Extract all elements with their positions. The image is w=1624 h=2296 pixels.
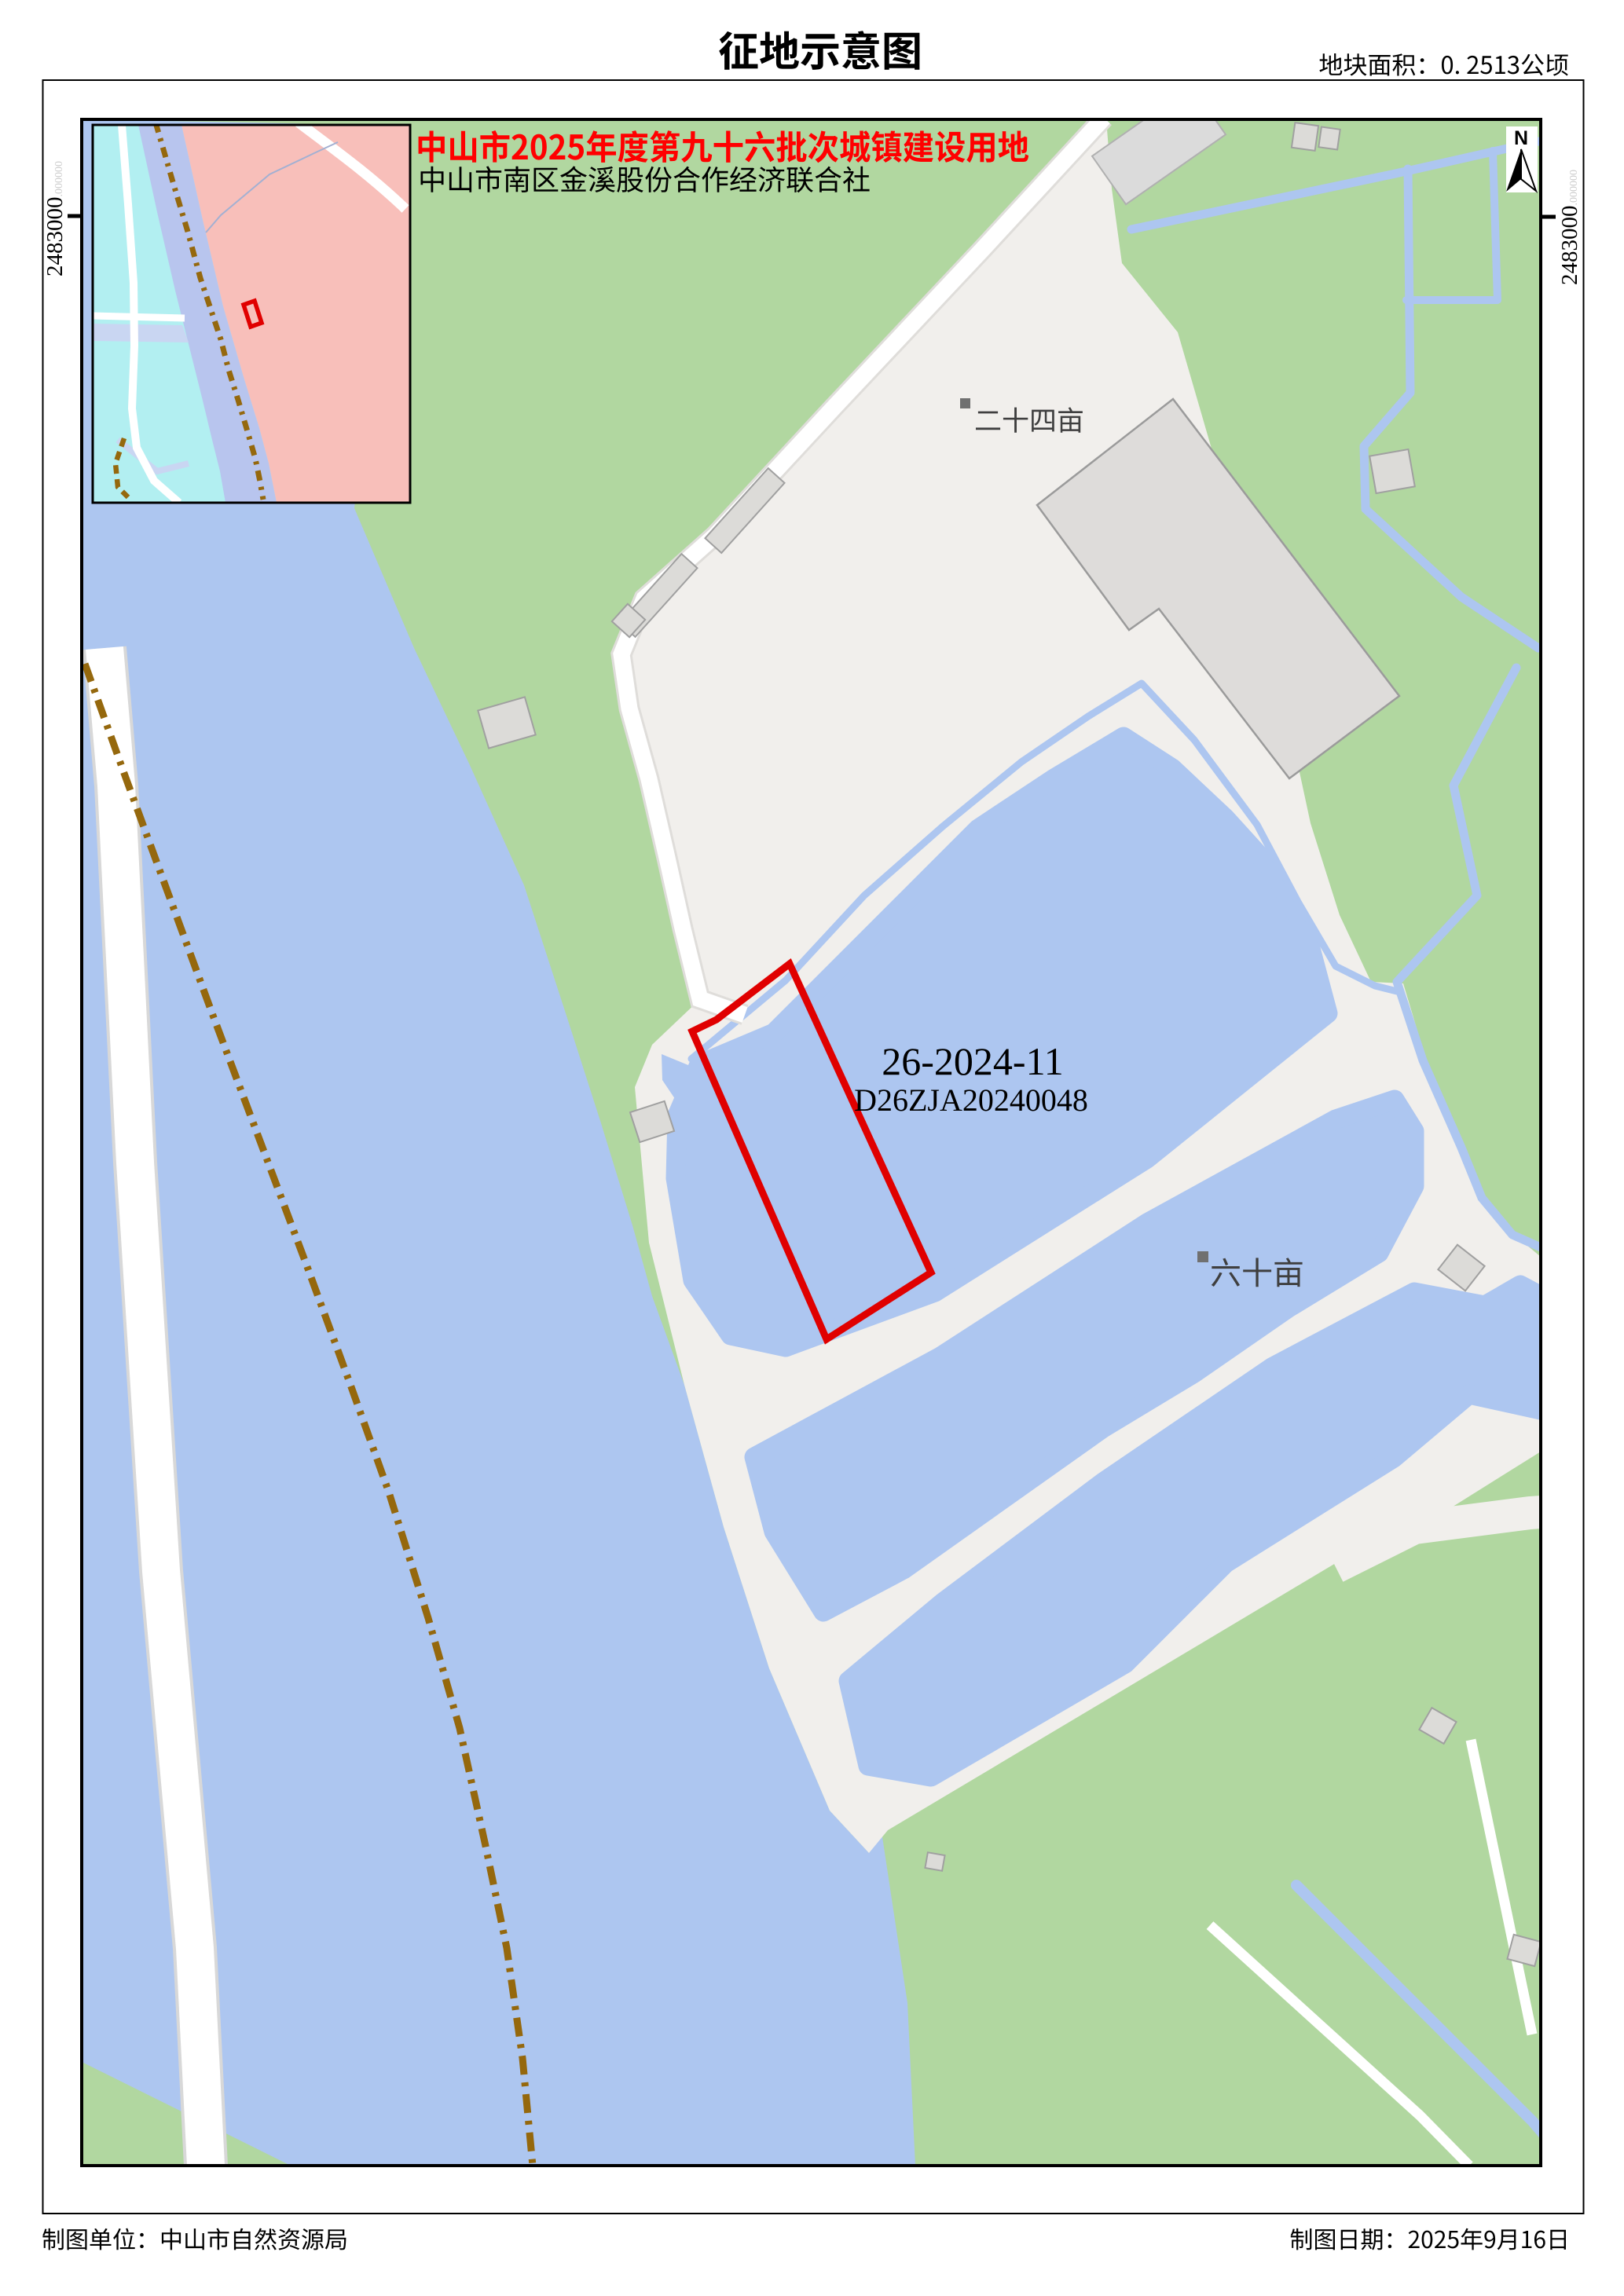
svg-text:D26ZJA20240048: D26ZJA20240048: [854, 1082, 1088, 1118]
svg-text:26-2024-11: 26-2024-11: [882, 1039, 1063, 1083]
svg-text:N: N: [1514, 127, 1528, 149]
